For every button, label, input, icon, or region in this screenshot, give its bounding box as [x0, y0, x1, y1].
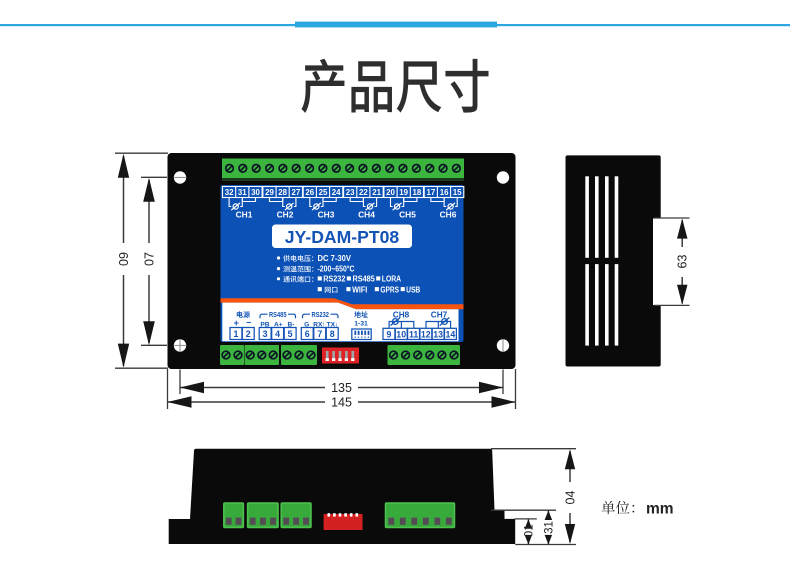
svg-text:13: 13 — [433, 330, 443, 340]
svg-text:4: 4 — [275, 329, 280, 339]
svg-text:07: 07 — [142, 252, 156, 266]
svg-text:12: 12 — [421, 330, 431, 340]
svg-text:WIFI: WIFI — [352, 285, 367, 294]
svg-text:19: 19 — [399, 188, 408, 197]
svg-text:21: 21 — [372, 188, 381, 197]
svg-text:29: 29 — [265, 188, 274, 197]
svg-text:JY-DAM-PT08: JY-DAM-PT08 — [285, 227, 400, 247]
svg-text:CH1: CH1 — [236, 210, 253, 220]
svg-text:CH6: CH6 — [440, 210, 457, 220]
svg-text:RS485: RS485 — [353, 275, 376, 284]
svg-text:145: 145 — [331, 395, 352, 409]
svg-text:20: 20 — [386, 188, 395, 197]
svg-text:23: 23 — [346, 188, 355, 197]
svg-text:-200~650°C: -200~650°C — [318, 265, 355, 274]
svg-text:CH4: CH4 — [358, 210, 375, 220]
svg-text:RS232: RS232 — [311, 310, 329, 319]
svg-text:32: 32 — [225, 188, 234, 197]
svg-text:–: – — [246, 317, 251, 327]
svg-text:CH2: CH2 — [277, 210, 294, 220]
svg-text:9: 9 — [386, 330, 391, 340]
svg-text:25: 25 — [319, 188, 328, 197]
svg-text:15: 15 — [453, 188, 462, 197]
svg-text:CH7: CH7 — [431, 310, 448, 319]
svg-text:11: 11 — [409, 330, 418, 340]
svg-text:LORA: LORA — [382, 275, 402, 284]
svg-text:135: 135 — [331, 381, 352, 395]
svg-text:22: 22 — [359, 188, 368, 197]
svg-text:7: 7 — [317, 329, 322, 339]
svg-text:30: 30 — [251, 188, 260, 197]
svg-text:24: 24 — [332, 188, 341, 197]
svg-text:04: 04 — [563, 491, 577, 505]
svg-text:6: 6 — [305, 329, 310, 339]
svg-text:10: 10 — [396, 330, 406, 340]
svg-text:RS232: RS232 — [323, 275, 346, 284]
svg-text:1-31: 1-31 — [354, 320, 368, 327]
svg-text:63: 63 — [675, 255, 689, 269]
svg-text:28: 28 — [278, 188, 287, 197]
svg-text:USB: USB — [406, 285, 421, 294]
svg-text:5: 5 — [288, 329, 293, 339]
svg-text:18: 18 — [413, 188, 422, 197]
svg-text:CH3: CH3 — [318, 210, 335, 220]
svg-text:8: 8 — [330, 329, 335, 339]
svg-text:1: 1 — [233, 329, 238, 339]
svg-text:mm: mm — [646, 501, 674, 518]
svg-text:26: 26 — [305, 188, 314, 197]
svg-text:17: 17 — [427, 188, 436, 197]
svg-text:31: 31 — [543, 521, 555, 534]
svg-text:GPRS: GPRS — [380, 285, 399, 294]
svg-text:01: 01 — [523, 524, 535, 537]
svg-text:14: 14 — [446, 330, 456, 340]
svg-text:+: + — [234, 318, 239, 328]
svg-text:27: 27 — [292, 188, 301, 197]
svg-text:CH5: CH5 — [399, 210, 416, 220]
svg-text:RS485: RS485 — [269, 310, 287, 319]
svg-text:31: 31 — [238, 188, 247, 197]
svg-text:DC 7-30V: DC 7-30V — [318, 254, 352, 263]
svg-text:2: 2 — [246, 329, 251, 339]
svg-text:3: 3 — [263, 329, 268, 339]
svg-text:09: 09 — [117, 252, 131, 266]
svg-text:16: 16 — [440, 188, 449, 197]
